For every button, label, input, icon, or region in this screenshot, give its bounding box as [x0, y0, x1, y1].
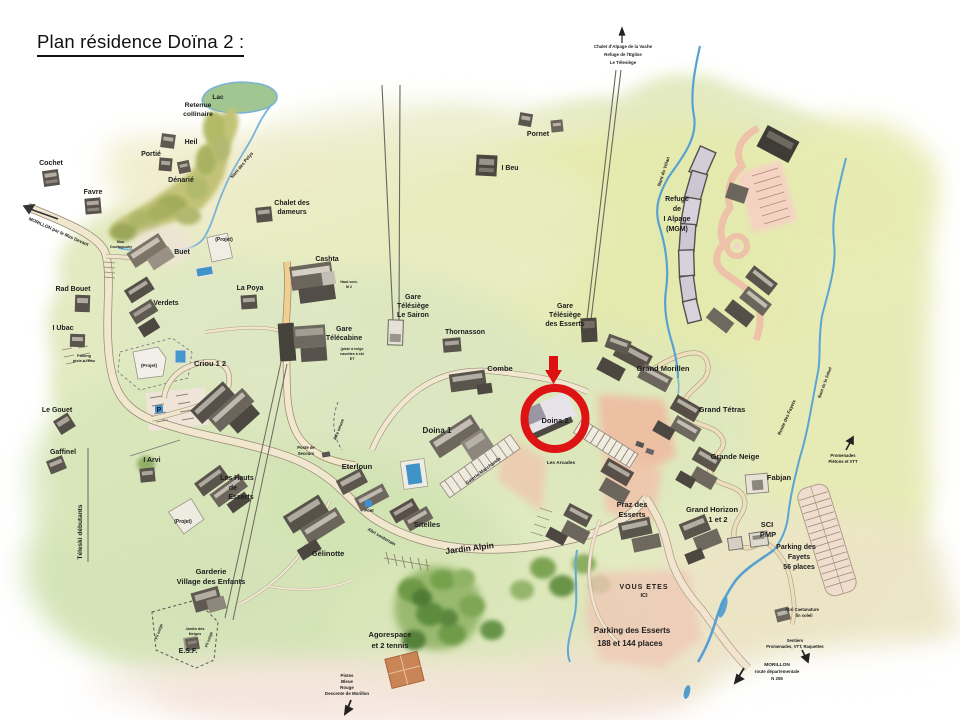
svg-text:Refuge de l'Eglise: Refuge de l'Eglise: [604, 52, 642, 57]
svg-text:Eterloun: Eterloun: [342, 462, 373, 471]
svg-text:Sentiers: Sentiers: [787, 638, 804, 643]
svg-text:Télécabine: Télécabine: [326, 335, 362, 342]
svg-text:Fayets: Fayets: [788, 554, 810, 561]
svg-text:Secours: Secours: [298, 451, 315, 456]
svg-text:Piétons et VTT: Piétons et VTT: [828, 459, 858, 464]
svg-text:I Ubac: I Ubac: [52, 325, 73, 332]
svg-text:Téleski débutants: Téleski débutants: [77, 504, 84, 559]
svg-text:Grand Morillen: Grand Morillen: [637, 364, 690, 373]
svg-text:Descente de Morillon: Descente de Morillon: [325, 691, 369, 696]
svg-text:Gélinotte: Gélinotte: [312, 549, 345, 558]
svg-text:Neiges: Neiges: [189, 632, 201, 636]
svg-text:(MGM): (MGM): [666, 226, 688, 233]
svg-text:Buet: Buet: [174, 249, 190, 256]
svg-text:Grand Tétras: Grand Tétras: [699, 405, 746, 414]
svg-text:Mou.: Mou.: [117, 240, 125, 244]
svg-text:Cashta: Cashta: [315, 256, 338, 263]
svg-text:Favre: Favre: [84, 189, 103, 196]
svg-text:188 et 144 places: 188 et 144 places: [597, 639, 663, 648]
svg-text:Rad Bouet: Rad Bouet: [56, 286, 92, 293]
svg-text:Cochet: Cochet: [39, 160, 63, 167]
svg-text:Haut som.: Haut som.: [340, 280, 357, 284]
svg-text:1 et 2: 1 et 2: [708, 515, 727, 524]
svg-text:Les Hauts: Les Hauts: [220, 475, 254, 482]
svg-text:Agorespace: Agorespace: [369, 630, 412, 639]
svg-text:Télésiège: Télésiège: [397, 303, 429, 310]
svg-text:Gare: Gare: [557, 303, 573, 310]
svg-text:Les Arcades: Les Arcades: [547, 460, 576, 466]
svg-text:navettes à ski: navettes à ski: [340, 352, 364, 356]
svg-text:Grande Neige: Grande Neige: [711, 452, 760, 461]
svg-text:Rouge: Rouge: [340, 685, 354, 690]
svg-text:de: de: [229, 485, 237, 492]
svg-text:Parking: Parking: [77, 354, 92, 358]
svg-text:Couttagoudry: Couttagoudry: [110, 245, 132, 249]
svg-text:VOUS ETES: VOUS ETES: [619, 584, 668, 591]
svg-text:La Poya: La Poya: [237, 285, 264, 292]
svg-text:Dénarié: Dénarié: [168, 177, 194, 184]
svg-text:Pornet: Pornet: [527, 131, 550, 138]
svg-text:Esserts: Esserts: [618, 510, 645, 519]
svg-text:I Alpage: I Alpage: [664, 216, 691, 223]
svg-text:(Projet): (Projet): [174, 519, 192, 525]
svg-text:Gare: Gare: [336, 326, 352, 333]
svg-text:de: de: [673, 206, 681, 213]
svg-text:Verdets: Verdets: [153, 300, 178, 307]
svg-text:P: P: [157, 407, 162, 414]
svg-text:des Esserts: des Esserts: [545, 321, 584, 328]
svg-text:Garderie: Garderie: [196, 567, 227, 576]
svg-text:(Projet): (Projet): [141, 363, 158, 368]
svg-text:E.S.F.: E.S.F.: [179, 648, 198, 655]
svg-text:Retenue: Retenue: [185, 102, 212, 109]
svg-text:Heil: Heil: [185, 139, 198, 146]
svg-text:Village des Enfants: Village des Enfants: [177, 577, 246, 586]
svg-text:Lac: Lac: [212, 94, 224, 101]
svg-text:Thornasson: Thornasson: [445, 329, 485, 336]
svg-text:Télésiège: Télésiège: [549, 312, 581, 319]
svg-text:piste à l'Eau: piste à l'Eau: [73, 359, 96, 363]
svg-text:Le Télesiège: Le Télesiège: [610, 60, 637, 65]
svg-text:Sitelles: Sitelles: [414, 520, 440, 529]
svg-text:MORILLON: MORILLON: [764, 662, 790, 668]
svg-text:Bleue: Bleue: [341, 679, 354, 684]
svg-text:ET: ET: [350, 357, 355, 361]
svg-text:Parking des Esserts: Parking des Esserts: [594, 626, 671, 635]
svg-text:Parking des: Parking des: [776, 544, 816, 551]
svg-text:Poste de: Poste de: [297, 445, 315, 450]
svg-text:Doina 1: Doina 1: [423, 426, 452, 435]
svg-text:Gare: Gare: [405, 294, 421, 301]
svg-text:et 2 tennis: et 2 tennis: [371, 641, 408, 650]
svg-text:Doina 2: Doina 2: [541, 416, 568, 425]
svg-text:Combe: Combe: [487, 364, 512, 373]
svg-text:Esserts: Esserts: [228, 494, 253, 501]
svg-text:Jardin des: Jardin des: [186, 627, 205, 631]
svg-text:I Beu: I Beu: [501, 165, 518, 172]
svg-text:I Arvi: I Arvi: [143, 457, 160, 464]
svg-text:Criou 1 2: Criou 1 2: [194, 359, 226, 368]
svg-text:SCI: SCI: [761, 520, 774, 529]
svg-text:collinaire: collinaire: [183, 111, 213, 118]
svg-text:Abri Caetanature: Abri Caetanature: [785, 607, 819, 612]
svg-text:Le Sairon: Le Sairon: [397, 312, 429, 319]
svg-text:ICI: ICI: [640, 593, 648, 599]
svg-text:Pistes: Pistes: [341, 673, 354, 678]
svg-text:(Projet): (Projet): [215, 237, 233, 243]
svg-text:dameurs: dameurs: [277, 209, 306, 216]
svg-text:Chalet des: Chalet des: [274, 200, 310, 207]
svg-text:Gaffinel: Gaffinel: [50, 449, 76, 456]
svg-text:Pont: Pont: [364, 508, 374, 513]
svg-text:N 255: N 255: [771, 676, 783, 681]
svg-text:Fabjan: Fabjan: [767, 473, 792, 482]
svg-text:Portié: Portié: [141, 151, 161, 158]
svg-text:56 places: 56 places: [783, 564, 815, 571]
svg-text:route départementale: route départementale: [755, 669, 800, 674]
svg-text:Praz des: Praz des: [617, 500, 648, 509]
svg-text:Grand Horizon: Grand Horizon: [686, 505, 739, 514]
svg-text:Promenades, VTT, Raquettes: Promenades, VTT, Raquettes: [766, 644, 824, 649]
svg-text:Le Gouet: Le Gouet: [42, 407, 73, 414]
svg-text:Refuge: Refuge: [665, 196, 689, 203]
svg-text:(piste à neige: (piste à neige: [341, 347, 364, 351]
svg-text:M 2: M 2: [346, 285, 352, 289]
svg-text:fin soleil: fin soleil: [796, 613, 813, 618]
svg-text:PMP: PMP: [760, 530, 776, 539]
svg-text:Chalet d'Alpage de la Vache: Chalet d'Alpage de la Vache: [594, 44, 653, 49]
svg-text:Promenades: Promenades: [830, 453, 856, 458]
